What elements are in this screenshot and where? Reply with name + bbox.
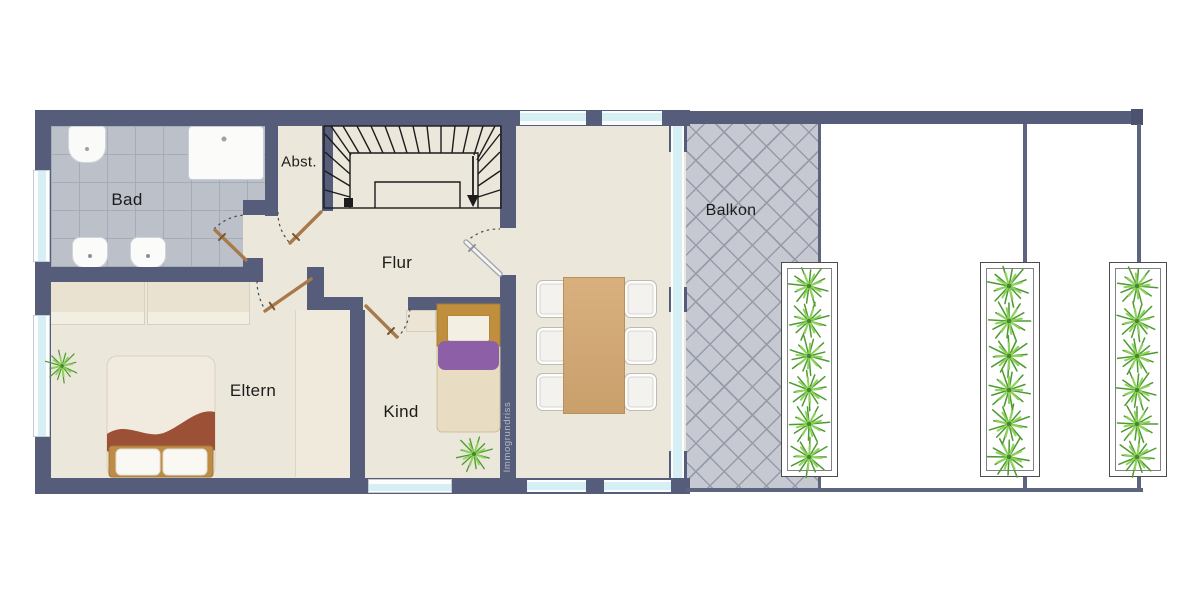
- shower-tray: [188, 126, 264, 180]
- room-label-flur: Flur: [382, 253, 412, 273]
- planter-inner-rim: [986, 268, 1034, 471]
- window-eltern: [33, 315, 50, 437]
- window-bad: [33, 170, 50, 262]
- wall-eltern-kind: [350, 310, 365, 478]
- sink: [130, 237, 166, 268]
- dining-table: [563, 277, 625, 414]
- wall-bottom: [35, 478, 690, 494]
- wardrobe: [147, 281, 250, 325]
- closet-niche: [295, 310, 351, 477]
- glass-wall-balcony: [671, 126, 684, 478]
- room-label-eltern: Eltern: [230, 381, 276, 401]
- window-dining-top: [520, 111, 586, 125]
- wall-abst-stair: [322, 126, 333, 211]
- planter: [980, 262, 1040, 477]
- planter-inner-rim: [1115, 268, 1161, 471]
- room-label-bad: Bad: [111, 190, 142, 210]
- wardrobe: [48, 281, 145, 325]
- wall-jamb: [243, 258, 263, 268]
- nightstand: [406, 310, 436, 332]
- terrace-divider: [1023, 124, 1027, 263]
- window-dining-bottom: [527, 480, 586, 492]
- terrace-divider: [1137, 124, 1141, 263]
- planter-inner-rim: [787, 268, 832, 471]
- wall-top: [35, 110, 690, 126]
- wall-bad-eltern: [35, 267, 263, 282]
- room-label-abst: Abst.: [281, 154, 317, 171]
- wall-end-cap: [1131, 109, 1143, 125]
- watermark: Immogrundriss: [502, 391, 514, 483]
- sink: [72, 237, 108, 268]
- toilet: [68, 126, 106, 163]
- dining-chair: [624, 327, 657, 365]
- planter: [781, 262, 838, 477]
- room-label-kind: Kind: [383, 402, 418, 422]
- planter: [1109, 262, 1167, 477]
- dining-chair: [624, 373, 657, 411]
- floor-plan: Bad Abst. Flur Eltern Kind Balkon Immogr…: [0, 0, 1200, 600]
- wall-flur-kind: [307, 297, 363, 310]
- terrace-bottom-edge: [686, 488, 1143, 492]
- wall-top-terrace: [686, 111, 1143, 124]
- window-dining-bottom: [604, 480, 671, 492]
- room-label-balkon: Balkon: [706, 202, 757, 220]
- window-kind: [368, 479, 452, 493]
- dining-chair: [624, 280, 657, 318]
- wall-cap: [243, 200, 278, 215]
- wall-dining-left: [500, 110, 516, 228]
- window-dining-top: [602, 111, 662, 125]
